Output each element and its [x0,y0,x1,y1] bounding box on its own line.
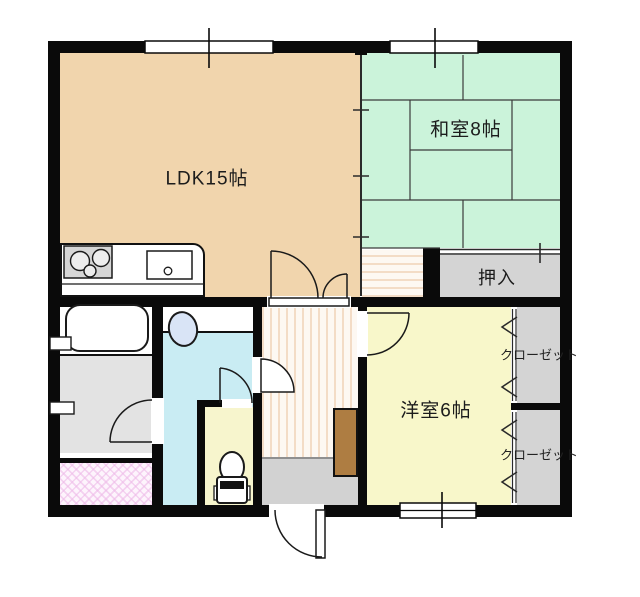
label-oshiire: 押入 [478,264,516,290]
washroom-door-opening [252,357,263,393]
wall-top [48,41,572,53]
ldk-door-opening [267,296,351,308]
wall-closet-separator [511,403,560,410]
wall-left [48,41,60,517]
laundry-tile-area [60,458,152,505]
wall-divider-nub [355,47,367,55]
label-youshitsu: 洋室6帖 [400,396,472,423]
wall-toilet-left [197,400,205,505]
room-washitsu-tatami [362,53,560,248]
entrance-door-opening [269,504,324,518]
floor-plan: LDK15帖 和室8帖 押入 洋室6帖 クローゼット クローゼット [0,0,640,597]
bathtub-area [60,300,152,356]
kitchen-counter [60,243,205,297]
vanity-counter [163,307,253,333]
label-ldk: LDK15帖 [165,164,248,191]
toilet-door-opening [222,399,252,408]
washitsu-step-strip [362,250,423,297]
label-washitsu: 和室8帖 [430,115,502,142]
wall-washroom-hallway [253,307,262,505]
youshitsu-door-opening [357,311,368,357]
label-closet-upper: クローゼット [500,345,578,364]
bathroom-door-opening [151,398,164,444]
label-closet-lower: クローゼット [500,445,578,464]
wall-toilet-top [197,400,222,407]
wall-stub-oshiire [423,248,440,297]
toilet-room [205,407,253,505]
shoe-cabinet [333,408,358,477]
bathroom-floor [60,356,152,453]
